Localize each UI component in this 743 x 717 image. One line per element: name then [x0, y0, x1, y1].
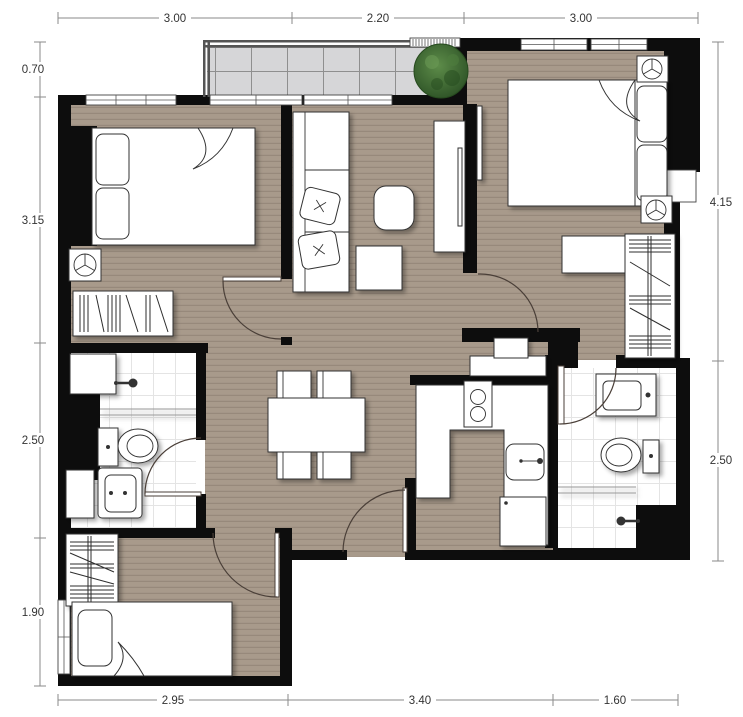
side-table: [356, 246, 402, 290]
hall-cabinet: [470, 356, 546, 376]
floor-plan: 3.00 2.20 3.00 0.70 3.15 2.50 1.90 4.15 …: [0, 0, 743, 717]
window-small-bedroom: [58, 600, 70, 674]
double-bed-master: [508, 80, 667, 206]
kitchen-sink: [506, 444, 544, 480]
dimension-label: 3.15: [22, 215, 44, 227]
dimension-label: 1.60: [604, 695, 626, 707]
dimension-label: 3.00: [570, 13, 592, 25]
dimension-label: 2.20: [367, 13, 389, 25]
ac-unit-icon: [641, 196, 672, 223]
shelf-box: [70, 354, 116, 394]
window-master-bedroom: [521, 39, 647, 50]
niche: [66, 470, 94, 518]
dining-chair: [317, 452, 351, 479]
ac-unit-icon: [637, 56, 668, 82]
dining-chair: [317, 371, 351, 398]
dimension-label: 2.50: [22, 435, 44, 447]
coffee-table: [374, 186, 414, 230]
desk-master: [562, 236, 627, 273]
balcony-sliding-door: [210, 95, 392, 105]
tv-console: [434, 121, 465, 252]
dining-table: [268, 398, 365, 452]
stove: [464, 381, 492, 427]
dining-chair: [277, 371, 311, 398]
tv-master: [477, 106, 482, 180]
dimension-label: 2.50: [710, 455, 732, 467]
bathroom-sink-left: [98, 468, 142, 518]
dimension-label: 3.40: [409, 695, 431, 707]
dining-chair: [277, 452, 311, 479]
wardrobe-left-bedroom: [73, 291, 173, 336]
ac-unit-icon: [69, 249, 101, 281]
dimension-label: 4.15: [710, 197, 732, 209]
sofa: [293, 112, 349, 292]
single-bed: [72, 602, 232, 676]
dimension-label: 0.70: [22, 64, 44, 76]
double-bed-left: [92, 128, 255, 245]
toilet-master: [601, 438, 659, 473]
washing-machine: [500, 497, 546, 546]
toilet-left: [98, 428, 158, 466]
tv-living: [458, 148, 462, 226]
wardrobe-small-bedroom: [66, 534, 118, 606]
dimension-label: 1.90: [22, 607, 44, 619]
plant-icon: [414, 44, 468, 98]
window-bedroom-left: [86, 95, 176, 105]
wardrobe-master: [625, 234, 675, 358]
bathroom-sink-master: [596, 374, 656, 416]
dimension-label: 2.95: [162, 695, 184, 707]
dining-set: [268, 371, 365, 479]
floor-plan-drawing: 3.00 2.20 3.00 0.70 3.15 2.50 1.90 4.15 …: [0, 0, 743, 717]
dimension-label: 3.00: [164, 13, 186, 25]
fridge: [494, 338, 528, 358]
